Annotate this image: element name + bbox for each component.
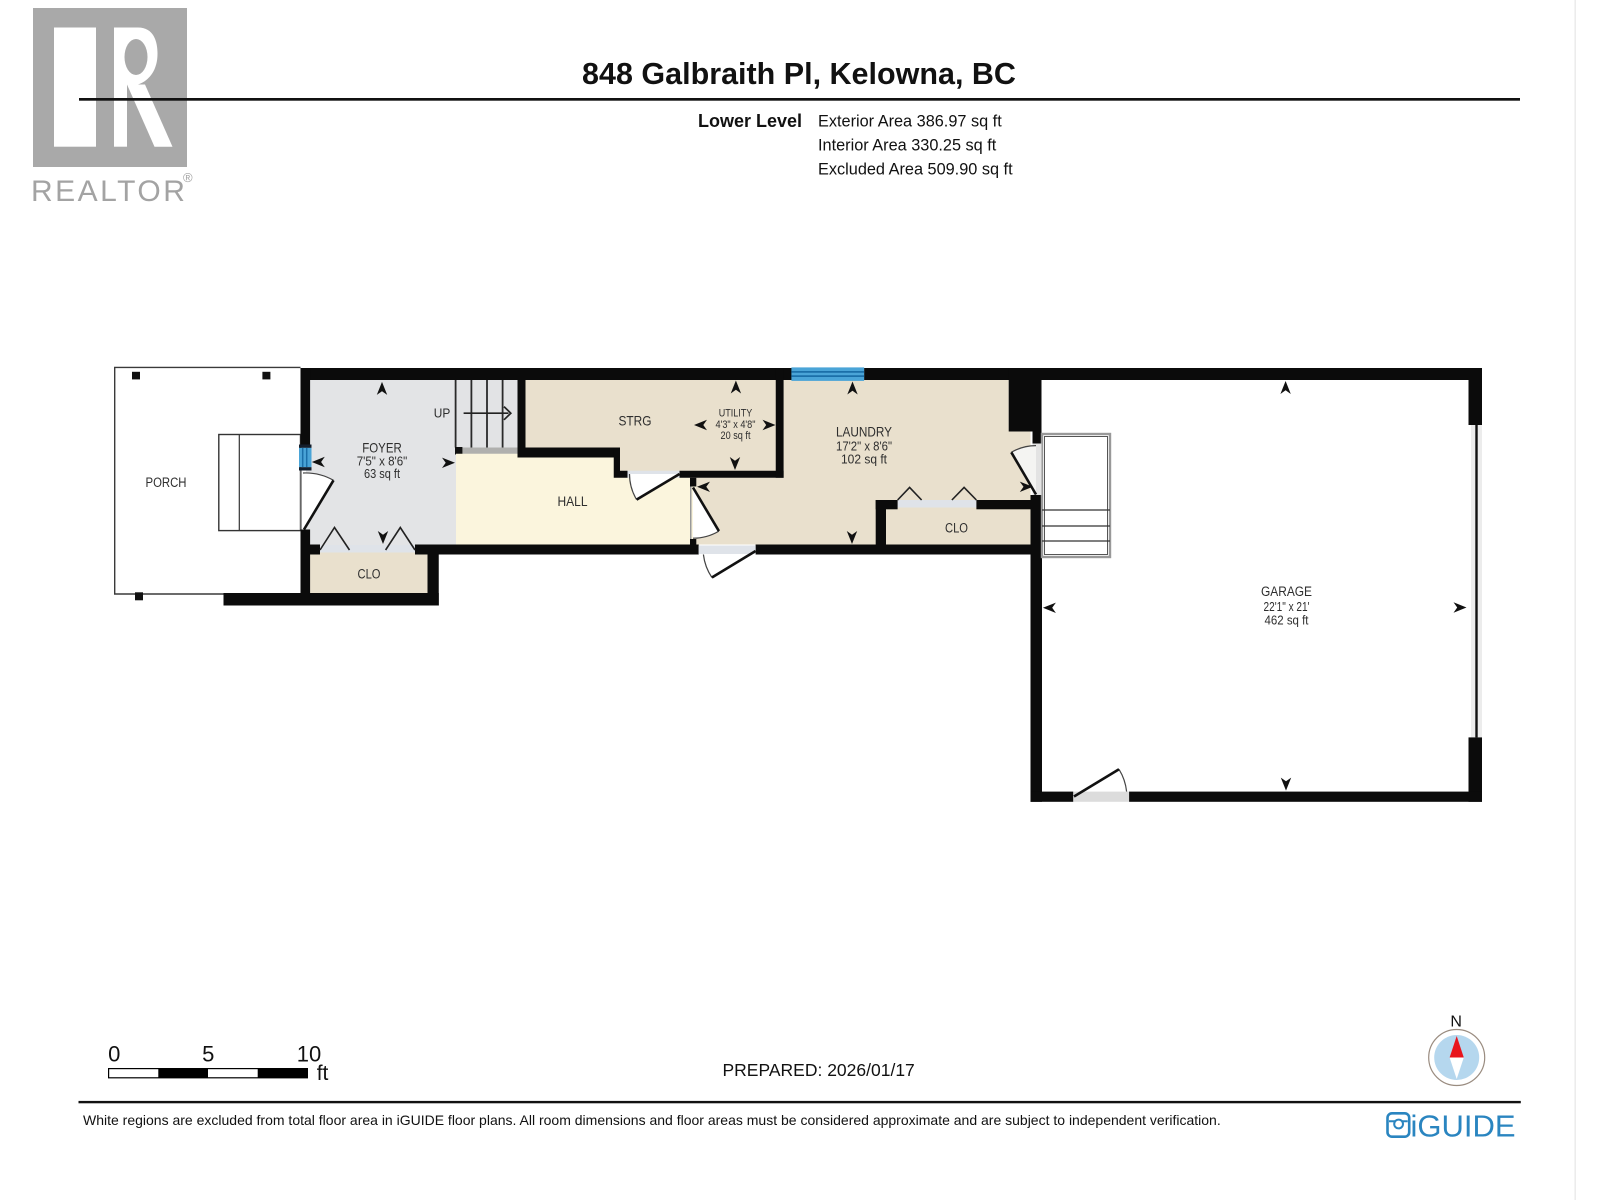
svg-text:GARAGE: GARAGE bbox=[1261, 584, 1312, 599]
svg-text:STRG: STRG bbox=[619, 413, 652, 429]
svg-text:®: ® bbox=[183, 170, 193, 185]
svg-text:LAUNDRY: LAUNDRY bbox=[836, 424, 893, 440]
svg-text:462 sq ft: 462 sq ft bbox=[1265, 613, 1309, 628]
svg-text:CLO: CLO bbox=[358, 567, 381, 582]
svg-text:PREPARED: 2026/01/17: PREPARED: 2026/01/17 bbox=[723, 1060, 915, 1080]
svg-text:102 sq ft: 102 sq ft bbox=[841, 452, 887, 467]
svg-text:UTILITY: UTILITY bbox=[719, 408, 753, 420]
svg-text:Excluded Area 509.90 sq ft: Excluded Area 509.90 sq ft bbox=[818, 161, 1013, 179]
svg-text:N: N bbox=[1450, 1014, 1462, 1031]
svg-text:20 sq ft: 20 sq ft bbox=[721, 430, 751, 442]
svg-text:HALL: HALL bbox=[558, 493, 588, 509]
svg-text:White regions are excluded fro: White regions are excluded from total fl… bbox=[83, 1112, 1221, 1128]
svg-text:UP: UP bbox=[434, 406, 451, 421]
svg-text:0: 0 bbox=[108, 1042, 120, 1067]
svg-text:ft: ft bbox=[317, 1062, 329, 1085]
svg-text:REALTOR: REALTOR bbox=[31, 175, 187, 208]
svg-text:Lower Level: Lower Level bbox=[698, 111, 802, 131]
svg-text:PORCH: PORCH bbox=[146, 475, 187, 490]
svg-text:5: 5 bbox=[202, 1042, 214, 1067]
svg-text:iGUIDE: iGUIDE bbox=[1411, 1109, 1516, 1144]
svg-text:Interior Area 330.25 sq ft: Interior Area 330.25 sq ft bbox=[818, 137, 997, 155]
svg-text:Exterior Area 386.97 sq ft: Exterior Area 386.97 sq ft bbox=[818, 113, 1002, 131]
svg-text:848 Galbraith Pl, Kelowna, BC: 848 Galbraith Pl, Kelowna, BC bbox=[582, 57, 1016, 91]
svg-text:CLO: CLO bbox=[945, 521, 968, 536]
svg-text:63 sq ft: 63 sq ft bbox=[364, 466, 400, 481]
